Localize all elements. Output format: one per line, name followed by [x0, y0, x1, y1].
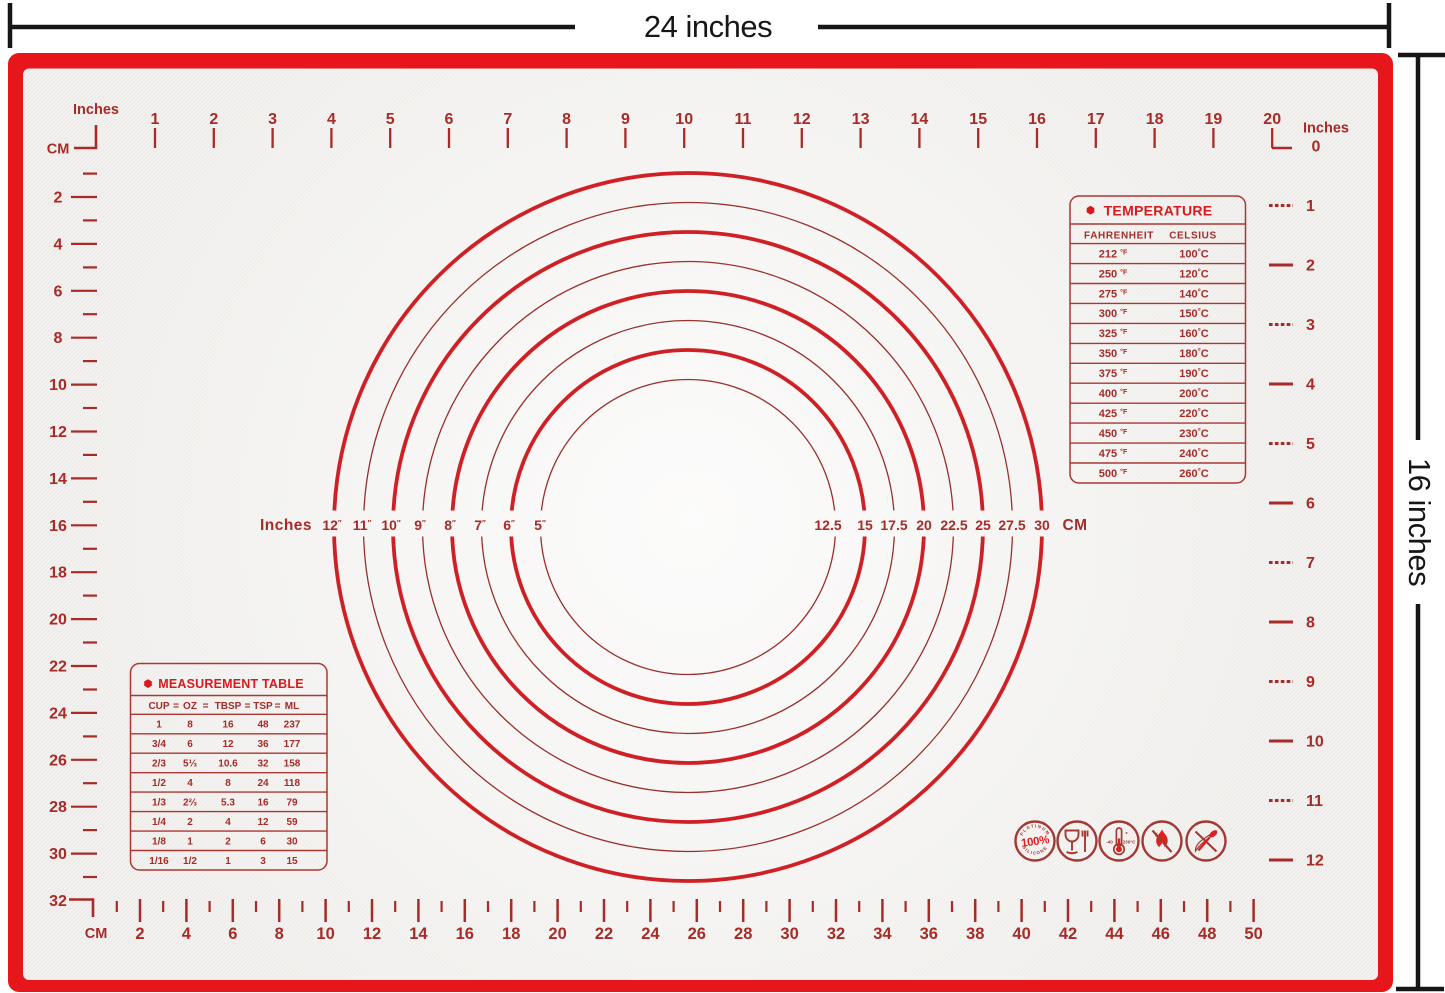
- svg-text:Inches: Inches: [260, 517, 312, 534]
- svg-text:CM: CM: [1062, 517, 1087, 534]
- svg-text:0: 0: [1312, 139, 1321, 156]
- svg-text:Inches: Inches: [1303, 121, 1349, 137]
- svg-text:-40: -40: [1106, 840, 1113, 845]
- svg-text:TEMPERATURE: TEMPERATURE: [1104, 203, 1213, 219]
- svg-text:CM: CM: [47, 142, 70, 158]
- svg-text:FAHRENHEITCELSIUS: FAHRENHEITCELSIUS: [1084, 231, 1217, 242]
- svg-text:CM: CM: [85, 926, 108, 942]
- svg-text:Inches: Inches: [73, 102, 119, 118]
- svg-text:230°C: 230°C: [1123, 840, 1137, 845]
- svg-text:24 inches: 24 inches: [644, 9, 772, 44]
- svg-text:MEASUREMENT TABLE: MEASUREMENT TABLE: [158, 677, 304, 691]
- svg-text:16 inches: 16 inches: [1402, 458, 1437, 586]
